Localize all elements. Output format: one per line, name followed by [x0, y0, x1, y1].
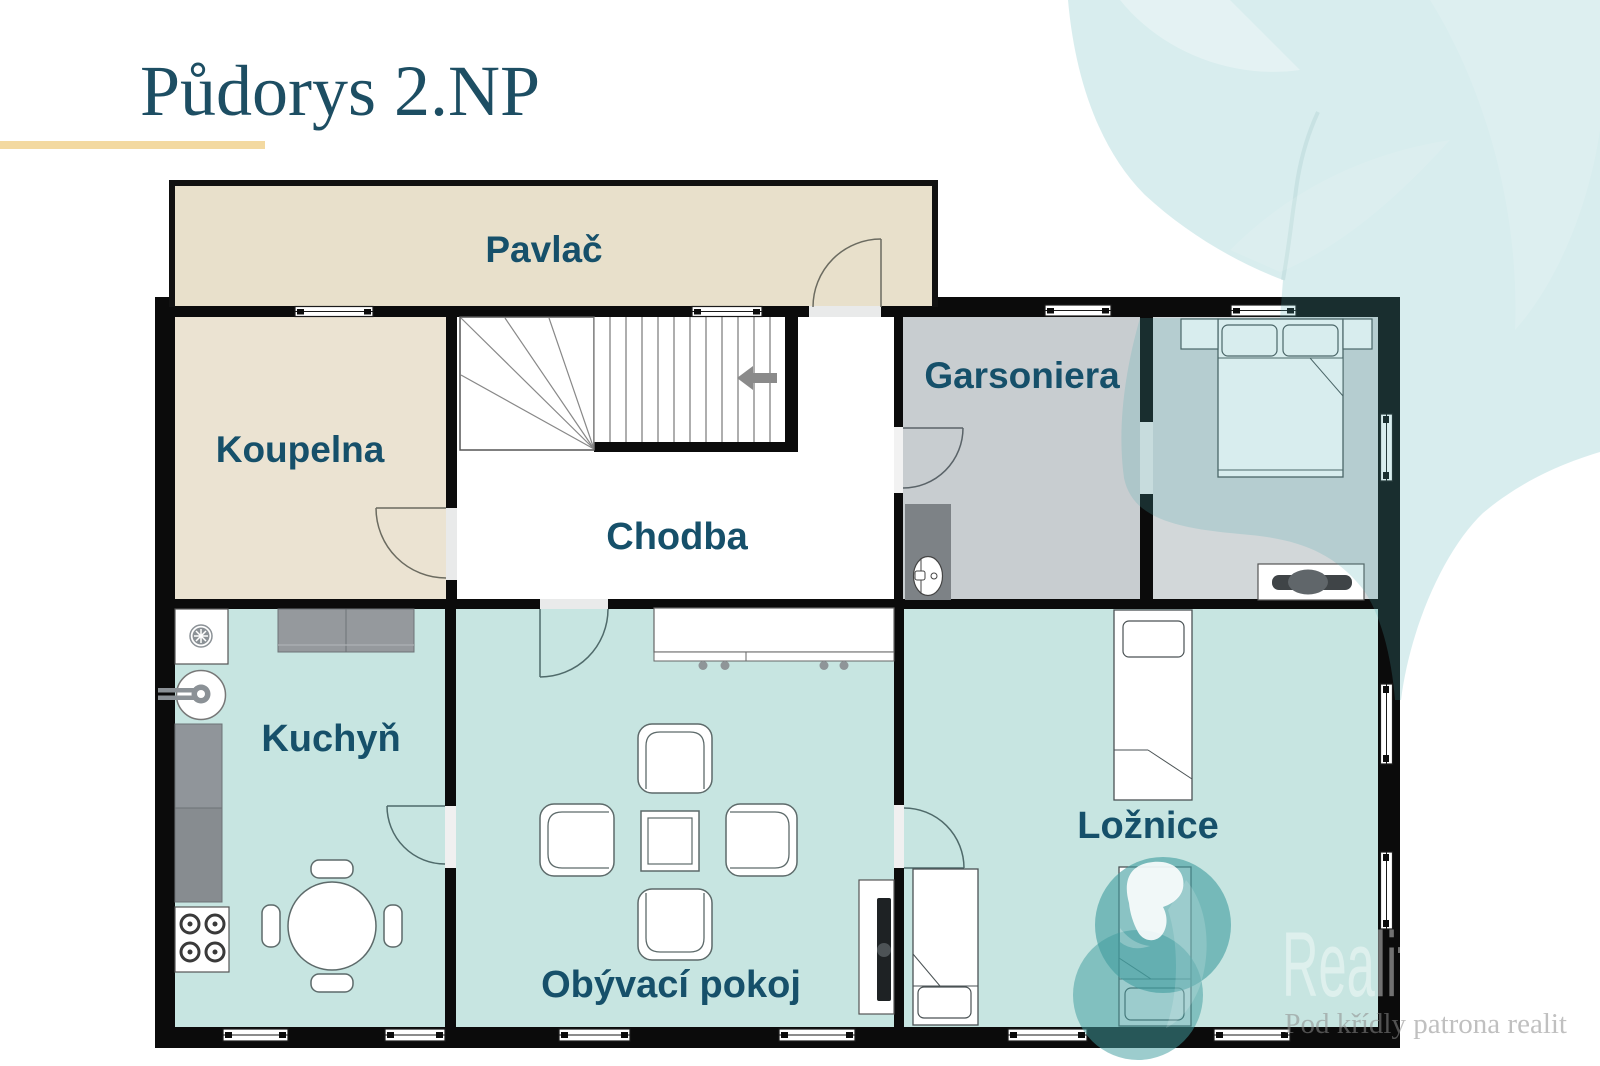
svg-text:Ložnice: Ložnice: [1077, 805, 1218, 847]
svg-text:Chodba: Chodba: [606, 516, 748, 558]
svg-text:Kuchyň: Kuchyň: [261, 718, 400, 760]
svg-text:Půdorys 2.NP: Půdorys 2.NP: [140, 51, 540, 131]
svg-text:Obývací pokoj: Obývací pokoj: [541, 964, 801, 1006]
svg-text:Reality: Reality: [1282, 913, 1437, 1016]
svg-text:Koupelna: Koupelna: [216, 429, 385, 470]
svg-text:Pod křídly patrona realit: Pod křídly patrona realit: [1284, 1008, 1567, 1040]
svg-text:Garsoniera: Garsoniera: [924, 355, 1120, 396]
svg-text:Pavlač: Pavlač: [485, 229, 602, 270]
